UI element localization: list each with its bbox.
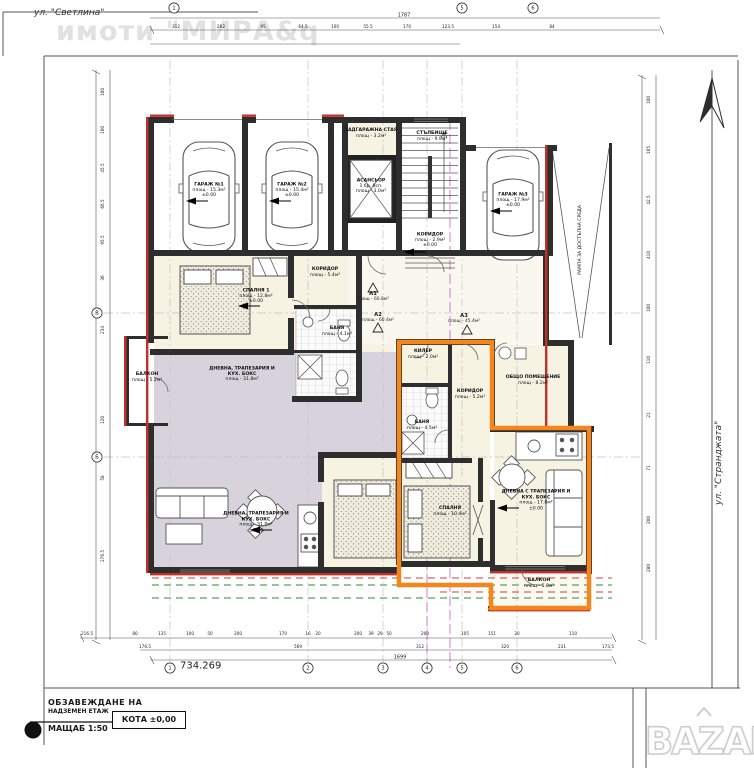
grid-axis-bubble: В (91, 307, 102, 318)
dimension-label: 50 (207, 632, 212, 637)
room-label-dnevna-a3: ДНЕВНА С ТРАПЕЗАРИЯ И КУХ. БОКС площ - 1… (499, 489, 574, 511)
room-label-koridor-a3: КОРИДОР площ - 5.2м² (455, 389, 485, 400)
dimension-label: 200 (421, 632, 429, 637)
dimension-label: 100 (101, 88, 106, 96)
room-label-garage-1: ГАРАЖ №1 площ - 15.3м² ±0.00 (192, 182, 225, 198)
room-label-koridor-a2: КОРИДОР площ - 5.4м² (310, 267, 340, 278)
dimension-label: 280 (647, 564, 652, 572)
dimension-total-top: 1787 (398, 12, 410, 18)
dimension-label: 50 (386, 632, 391, 637)
dimension-label: 71 (647, 465, 652, 470)
room-label-kiler: КИЛЕР площ - 2.0м² (408, 349, 438, 360)
dimension-label: 312 (416, 645, 424, 650)
room-label-obshto: ОБЩО ПОМЕЩЕНИЕ площ - 8.2м² (506, 375, 561, 386)
dimension-total-bottom: 1699 (394, 654, 406, 660)
dimension-label: 151 (488, 632, 496, 637)
dimension-label: 45.5 (101, 163, 106, 172)
dimension-label: 123.5 (442, 25, 454, 30)
dimension-label: 66.5 (101, 199, 106, 208)
grid-axis-bubble: 6 (511, 662, 522, 673)
room-label-balkon-a3: БАЛКОН площ - 5.8м² (524, 578, 554, 589)
dimension-label: 95.5 (101, 235, 106, 244)
dimension-label: 20 (315, 632, 320, 637)
dimension-label: 262 (217, 25, 225, 30)
floor-plan-drawing (0, 0, 754, 768)
dimension-label: 105 (647, 146, 652, 154)
room-label-banya-a2: БАНЯ площ - 4.1м² (322, 326, 352, 337)
grid-axis-bubble: 3 (377, 662, 388, 673)
room-label-dnevna-a2: ДНЕВНА, ТРАПЕЗАРИЯ И КУХ. БОКС площ - 31… (205, 366, 280, 382)
drawing-title-line2: НАДЗЕМЕН ЕТАЖ (48, 708, 109, 715)
room-label-koridor-vhod: КОРИДОР площ - 2.9м² ±0.00 (415, 232, 445, 248)
dimension-label: 58 (101, 475, 106, 480)
dimension-label: 154 (492, 25, 500, 30)
dimension-label: 21 (647, 412, 652, 417)
dimension-label: 231 (558, 645, 566, 650)
dimension-label: 276.5 (101, 550, 106, 562)
dimension-label: 84 (549, 25, 554, 30)
bazar-watermark: BAZAR (645, 720, 754, 763)
room-label-spalnya-a3: СПАЛНЯ площ - 10.4м² (433, 506, 466, 517)
dimension-label: 29 (377, 632, 382, 637)
apartment-marker-a1: А1 площ - 60.8м² (357, 290, 389, 301)
level-box: КОТА ±0,00 (112, 711, 186, 729)
street-name-right: ул. "Странджата" (714, 421, 724, 505)
dimension-label: 20 (514, 632, 519, 637)
dimension-label: 42.5 (647, 195, 652, 204)
dimension-label: 100 (331, 25, 339, 30)
dimension-label: 100 (186, 632, 194, 637)
grid-axis-bubble: 2 (302, 662, 313, 673)
dimension-label: 95 (260, 25, 265, 30)
room-label-garage-2: ГАРАЖ №2 площ - 15.4м² ±0.00 (275, 182, 308, 198)
grid-axis-bubble: Б (91, 451, 102, 462)
room-label-dnevna-a2-2: ДНЕВНА, ТРАПЕЗАРИЯ И КУХ. БОКС площ - 31… (219, 511, 294, 533)
apartment-marker-a2: А2 площ - 60.4м² (362, 311, 394, 322)
dimension-label: 170 (279, 632, 287, 637)
dimension-label: 39 (368, 632, 373, 637)
grid-axis-bubble: 4 (421, 662, 432, 673)
dimension-label: 216.5 (81, 632, 93, 637)
grid-axis-bubble: 1 (168, 2, 179, 13)
room-label-zadgarazhna: ЗАДГАРАЖНА СТАЯ площ - 3.2м² (345, 128, 398, 139)
dimension-label: 200 (234, 632, 242, 637)
dimension-label: 80 (132, 632, 137, 637)
dimension-label: 176.5 (139, 645, 151, 650)
grid-axis-bubble: 1 (164, 662, 175, 673)
street-name-top: ул. "Светлина" (34, 8, 104, 18)
dimension-label: 234 (101, 326, 106, 334)
room-label-banya-a3: БАНЯ площ - 4.5м² (407, 420, 437, 431)
dimension-label: 36 (101, 275, 106, 280)
room-label-balkon-a2: БАЛКОН площ - 5.2м² (132, 372, 162, 383)
dimension-label: 64.5 (298, 25, 307, 30)
room-label-spalnya-1: СПАЛНЯ 1 площ - 12.8м² ±0.00 (239, 288, 272, 304)
dimension-label: 320 (501, 645, 509, 650)
dimension-label: 170 (403, 25, 411, 30)
dimension-label: 569 (294, 645, 302, 650)
datum-elevation: 734.269 (180, 661, 221, 672)
room-label-garage-3: ГАРАЖ №3 площ - 17.9м² ±0.00 (496, 192, 529, 208)
dimension-label: 110 (569, 632, 577, 637)
drawing-title-line1: ОБЗАВЕЖДАНЕ НА (48, 698, 142, 707)
dimension-label: 120 (101, 416, 106, 424)
dimension-label: 200 (647, 516, 652, 524)
dimension-label: 110 (647, 356, 652, 364)
room-label-stalbishte: СТЪЛБИЩЕ площ - 9.9м² (416, 131, 447, 142)
dimension-label: 105 (461, 632, 469, 637)
room-label-asansior: АСАНСЬОР 1 бр. 8сп. площ - 3.0м² (356, 178, 386, 194)
drawing-scale: МАЩАБ 1:50 (48, 724, 108, 733)
dimension-label: 55.5 (363, 25, 372, 30)
floor-plan-page: имоти "МИРА&q (0, 0, 754, 768)
dimension-label: 173.5 (602, 645, 614, 650)
dimension-label: 100 (647, 304, 652, 312)
room-label-rampa: РАМПА ЗА ДОСТЪПНА СРЕДА (577, 205, 582, 275)
dimension-label: 312 (172, 25, 180, 30)
dimension-label: 100 (647, 96, 652, 104)
dimension-label: 200 (354, 632, 362, 637)
dimension-label: 135 (158, 632, 166, 637)
apartment-marker-a3: А3 площ - 45.4м² (448, 312, 480, 323)
dimension-label: 410 (647, 251, 652, 259)
grid-axis-bubble: 6 (527, 2, 538, 13)
grid-axis-bubble: 5 (456, 2, 467, 13)
dimension-label: 160 (101, 126, 106, 134)
grid-axis-bubble: 5 (456, 662, 467, 673)
dimension-label: 16 (305, 632, 310, 637)
